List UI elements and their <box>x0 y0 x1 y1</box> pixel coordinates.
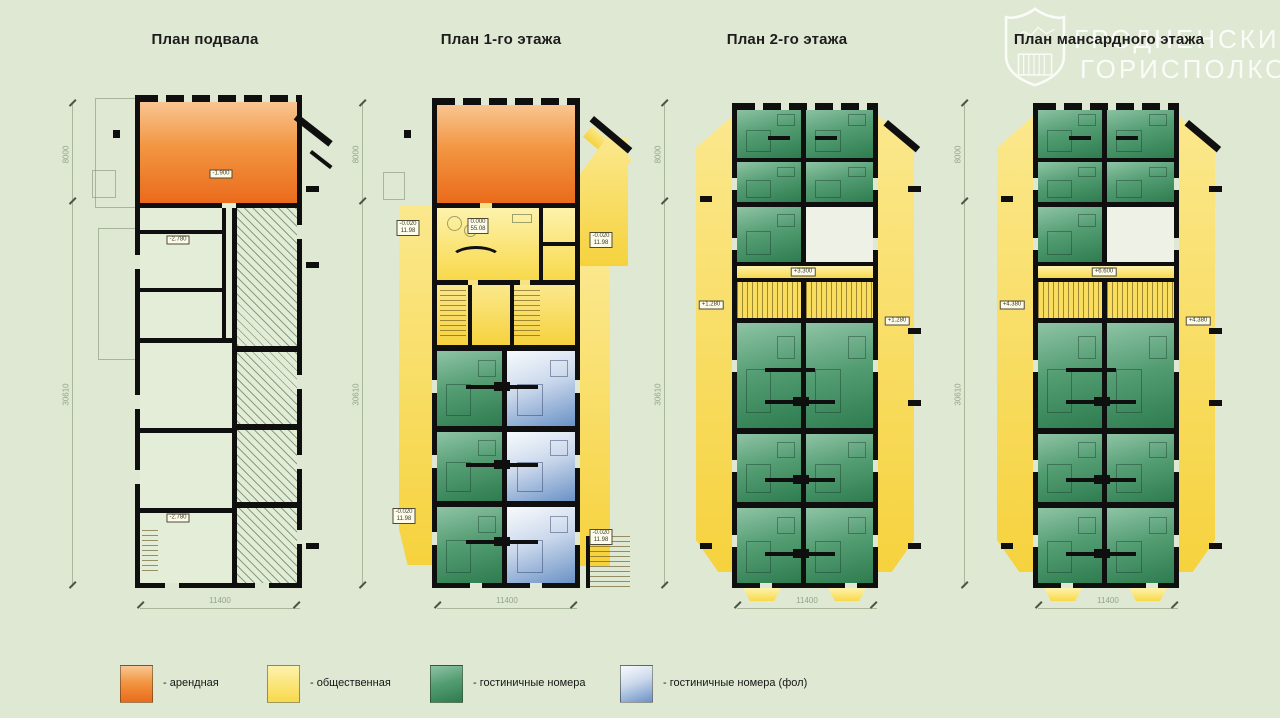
dimension-label: 8000 <box>954 135 963 175</box>
wall <box>768 136 790 140</box>
wall <box>140 338 232 343</box>
bed-outline <box>815 130 841 152</box>
hotel-room-fol <box>507 507 575 583</box>
window-gap <box>222 203 236 208</box>
stair <box>514 290 540 340</box>
bed-outline <box>1047 231 1072 255</box>
dimension-line <box>437 608 577 609</box>
window-gap <box>1174 238 1179 250</box>
furniture-outline <box>777 517 794 534</box>
wall <box>1102 508 1107 583</box>
window-gap <box>480 203 492 208</box>
elevation-label: 0.00055.08 <box>467 218 488 234</box>
window-gap <box>432 532 437 545</box>
wall <box>310 150 333 169</box>
hotel-room <box>1107 108 1174 158</box>
hotel-room <box>737 162 801 202</box>
furniture-outline <box>1078 214 1095 227</box>
furniture-outline <box>1078 442 1095 458</box>
plan-title-basement: План подвала <box>151 31 258 48</box>
gallery-right <box>1179 116 1215 572</box>
wall <box>1102 162 1107 202</box>
window-gap <box>1146 583 1158 588</box>
wall <box>700 543 712 549</box>
bed-outline <box>446 540 471 572</box>
plan-title-floor1: План 1-го этажа <box>441 31 562 48</box>
wall <box>140 508 232 513</box>
elevation-label: +4.380 <box>1186 317 1211 326</box>
window-gap <box>1033 238 1038 250</box>
furniture-outline <box>512 214 532 223</box>
window-wall <box>437 98 575 105</box>
bed-outline <box>1116 369 1142 413</box>
furniture-outline <box>777 336 794 359</box>
furniture-outline <box>447 216 462 231</box>
wall <box>1116 136 1138 140</box>
window-gap <box>732 535 737 547</box>
hotel-room <box>437 507 502 583</box>
wall <box>815 136 837 140</box>
window-gap <box>1174 360 1179 372</box>
furniture-outline <box>1149 114 1167 126</box>
legend-swatch-hotel-fol <box>620 665 653 703</box>
wall <box>135 203 302 208</box>
window-gap <box>1174 178 1179 190</box>
wall <box>1209 186 1222 192</box>
stair <box>1038 282 1102 318</box>
window-gap <box>873 460 878 472</box>
window-gap <box>530 583 542 588</box>
wall <box>432 280 580 285</box>
bed-outline <box>517 540 543 572</box>
rental-hall <box>437 103 575 203</box>
elevation-label: -2.780 <box>166 236 189 245</box>
wall <box>1069 136 1091 140</box>
window-gap <box>760 583 772 588</box>
window-gap <box>135 255 140 269</box>
elevation-label: -1.900 <box>209 170 232 179</box>
hotel-room <box>806 508 873 583</box>
wall <box>494 537 510 546</box>
legend-label-hotel: - гостиничные номера <box>473 677 586 689</box>
legend-label-hotel-fol: - гостиничные номера (фол) <box>663 677 807 689</box>
hotel-room <box>806 323 873 428</box>
furniture-outline <box>1149 167 1167 177</box>
bed-outline <box>1116 180 1142 198</box>
wall <box>306 186 319 192</box>
dim-8000: 8000 <box>62 135 71 175</box>
wall <box>908 400 921 406</box>
balcony <box>743 588 781 601</box>
watermark-line2: ГОРИСПОЛКОМ <box>1080 54 1280 84</box>
window-wall <box>140 95 297 102</box>
window-gap <box>1061 583 1073 588</box>
wall <box>732 262 878 266</box>
bed-outline <box>1047 369 1072 413</box>
dimension-label: 8000 <box>654 135 663 175</box>
wall <box>908 186 921 192</box>
window-gap <box>432 455 437 468</box>
wall <box>232 203 237 583</box>
legend-swatch-hotel <box>430 665 463 703</box>
furniture-outline <box>848 167 866 177</box>
bed-outline <box>815 541 841 573</box>
wall <box>908 543 921 549</box>
wall <box>801 282 806 318</box>
window-gap <box>575 532 580 545</box>
window-gap <box>873 535 878 547</box>
furniture-outline <box>777 167 794 177</box>
hotel-room <box>1038 508 1102 583</box>
stair <box>142 530 158 572</box>
window-gap <box>135 395 140 409</box>
wall <box>232 346 302 352</box>
wall <box>1001 543 1013 549</box>
hotel-room <box>1038 207 1102 262</box>
wall <box>1033 262 1179 266</box>
dimension-line <box>140 608 300 609</box>
stair <box>1107 282 1174 318</box>
hotel-room <box>1107 434 1174 502</box>
wall <box>113 130 120 138</box>
gallery-left <box>696 116 732 572</box>
furniture-outline <box>777 114 794 126</box>
dimension-label: 11400 <box>1078 596 1138 605</box>
dim-11400: 11400 <box>190 596 250 605</box>
wall <box>1102 323 1107 428</box>
wall <box>908 328 921 334</box>
wall <box>1094 549 1110 558</box>
dimension-line <box>737 608 877 609</box>
wall <box>232 502 302 508</box>
window-gap <box>297 375 302 389</box>
dimension-label: 30610 <box>352 375 361 415</box>
window-gap <box>845 583 857 588</box>
furniture-outline <box>1078 167 1095 177</box>
elevation-label: -0.02011.98 <box>589 232 612 248</box>
dimension-label: 11400 <box>477 596 537 605</box>
wall <box>1209 400 1222 406</box>
gallery-left <box>997 116 1033 572</box>
furniture-outline <box>1149 336 1167 359</box>
window-gap <box>432 380 437 393</box>
wall <box>801 508 806 583</box>
wall <box>1209 328 1222 334</box>
hotel-room <box>1107 162 1174 202</box>
elevation-label: -0.02011.98 <box>396 220 419 236</box>
watermark: ГРОДНЕНСКИЙ ГОРИСПОЛКОМ <box>1000 2 1280 98</box>
bed-outline <box>746 180 771 198</box>
dimension-label: 11400 <box>777 596 837 605</box>
elevation-label: +6.600 <box>1092 268 1117 277</box>
furniture-outline <box>1149 442 1167 458</box>
furniture-outline <box>848 442 866 458</box>
wall <box>801 323 806 428</box>
hotel-room <box>1038 323 1102 428</box>
hotel-room <box>806 162 873 202</box>
balcony <box>1044 588 1082 601</box>
dimension-label: 8000 <box>352 135 361 175</box>
window-gap <box>732 360 737 372</box>
rental-hall <box>140 100 297 203</box>
elevation-label: -2.780 <box>166 514 189 523</box>
dimension-line <box>664 103 665 587</box>
furniture-outline <box>1078 336 1095 359</box>
window-gap <box>732 460 737 472</box>
window-gap <box>470 583 482 588</box>
plan-title-attic: План мансардного этажа <box>1014 31 1204 48</box>
wall <box>494 382 510 391</box>
window-gap <box>520 280 530 285</box>
wall <box>793 475 809 484</box>
wall <box>1102 108 1107 158</box>
bed-outline <box>746 369 771 413</box>
window-gap <box>255 583 269 588</box>
plan-title-floor2: План 2-го этажа <box>727 31 848 48</box>
window-gap <box>297 530 302 544</box>
furniture-outline <box>848 114 866 126</box>
stair <box>440 290 466 340</box>
window-gap <box>1033 535 1038 547</box>
wall <box>1094 475 1110 484</box>
furniture-outline <box>1149 517 1167 534</box>
elevation-label: +4.380 <box>1000 301 1025 310</box>
site-outline <box>98 228 137 360</box>
legend-label-rental: - арендная <box>163 677 219 689</box>
furniture-outline <box>550 516 568 533</box>
window-gap <box>1033 460 1038 472</box>
window-gap <box>468 280 478 285</box>
hotel-room <box>737 508 801 583</box>
furniture-outline <box>1078 517 1095 534</box>
wall <box>222 208 226 338</box>
furniture-outline <box>848 336 866 359</box>
legend-swatch-public <box>267 665 300 703</box>
wall <box>306 262 319 268</box>
wall <box>700 196 712 202</box>
wall <box>793 549 809 558</box>
hotel-room <box>1038 434 1102 502</box>
elevation-label: +1.280 <box>885 317 910 326</box>
bed-outline <box>1047 541 1072 573</box>
stair-landing <box>1107 207 1174 262</box>
furniture-outline <box>550 440 568 456</box>
window-gap <box>165 583 179 588</box>
window-gap <box>1174 535 1179 547</box>
wall <box>765 368 815 372</box>
dimension-label: 30610 <box>954 375 963 415</box>
wall <box>432 203 580 208</box>
dimension-tick <box>359 581 366 588</box>
hotel-room <box>806 108 873 158</box>
window-gap <box>1033 360 1038 372</box>
wall <box>404 130 411 138</box>
bed-outline <box>1116 130 1142 152</box>
furniture-outline <box>550 360 568 377</box>
exterior-stair <box>92 170 116 198</box>
legend-label-public: - общественная <box>310 677 391 689</box>
wall <box>1102 434 1107 502</box>
wall <box>801 207 806 262</box>
floor-plans-sheet: ГРОДНЕНСКИЙ ГОРИСПОЛКОМ План подвала Пла… <box>0 0 1280 718</box>
legend-swatch-rental <box>120 665 153 703</box>
wall <box>468 285 472 345</box>
furniture-outline <box>777 442 794 458</box>
window-gap <box>575 455 580 468</box>
hotel-room <box>806 434 873 502</box>
wall <box>1066 368 1116 372</box>
hotel-room <box>1038 162 1102 202</box>
dimension-line <box>362 103 363 587</box>
dimension-tick <box>69 581 76 588</box>
hotel-room <box>737 108 801 158</box>
wall <box>801 434 806 502</box>
elevation-label: +3.300 <box>791 268 816 277</box>
furniture-outline <box>478 360 496 377</box>
stair <box>806 282 873 318</box>
wall <box>140 230 224 234</box>
dimension-tick <box>961 581 968 588</box>
window-gap <box>732 238 737 250</box>
wall <box>1094 397 1110 406</box>
window-gap <box>297 225 302 239</box>
window-gap <box>1033 178 1038 190</box>
furniture-outline <box>1078 114 1095 126</box>
window-gap <box>297 455 302 469</box>
furniture-outline <box>848 517 866 534</box>
hotel-room <box>737 323 801 428</box>
furniture-outline <box>478 516 496 533</box>
stair-landing <box>806 207 873 262</box>
bed-outline <box>746 231 771 255</box>
dimension-tick <box>661 581 668 588</box>
bed-outline <box>815 369 841 413</box>
bar-counter <box>450 246 502 272</box>
bed-outline <box>746 130 771 152</box>
furniture-outline <box>777 214 794 227</box>
window-gap <box>873 360 878 372</box>
window-gap <box>873 178 878 190</box>
wall <box>140 288 224 292</box>
stair <box>737 282 801 318</box>
window-gap <box>873 238 878 250</box>
elevation-label: +1.280 <box>699 301 724 310</box>
dimension-line <box>1038 608 1178 609</box>
hotel-room <box>1038 108 1102 158</box>
wall <box>140 428 232 433</box>
hotel-room <box>1107 508 1174 583</box>
dimension-line <box>964 103 965 587</box>
public-gallery-right <box>580 266 610 566</box>
bed-outline <box>1047 180 1072 198</box>
furniture-outline <box>478 440 496 456</box>
window-gap <box>575 380 580 393</box>
wall <box>1209 543 1222 549</box>
bed-outline <box>1047 130 1072 152</box>
window-gap <box>1174 460 1179 472</box>
elevation-label: -0.02011.98 <box>392 508 415 524</box>
wall <box>1102 207 1107 262</box>
gallery-right <box>878 116 914 572</box>
dimension-label: 30610 <box>654 375 663 415</box>
bed-outline <box>1116 541 1142 573</box>
exterior-stair <box>383 172 405 200</box>
wall <box>232 424 302 430</box>
wall <box>494 460 510 469</box>
bed-outline <box>815 180 841 198</box>
window-gap <box>135 470 140 484</box>
unexcavated-area <box>237 208 297 583</box>
window-gap <box>732 178 737 190</box>
hotel-room <box>737 207 801 262</box>
wall <box>306 543 319 549</box>
hotel-room <box>737 434 801 502</box>
dim-30610: 30610 <box>62 375 71 415</box>
wall <box>801 108 806 158</box>
elevation-label: -0.02011.98 <box>589 529 612 545</box>
wall <box>1001 196 1013 202</box>
dimension-line <box>72 103 73 587</box>
wall <box>801 162 806 202</box>
bed-outline <box>746 541 771 573</box>
wall <box>1102 282 1107 318</box>
wall <box>539 242 580 246</box>
hotel-room <box>1107 323 1174 428</box>
wall <box>793 397 809 406</box>
